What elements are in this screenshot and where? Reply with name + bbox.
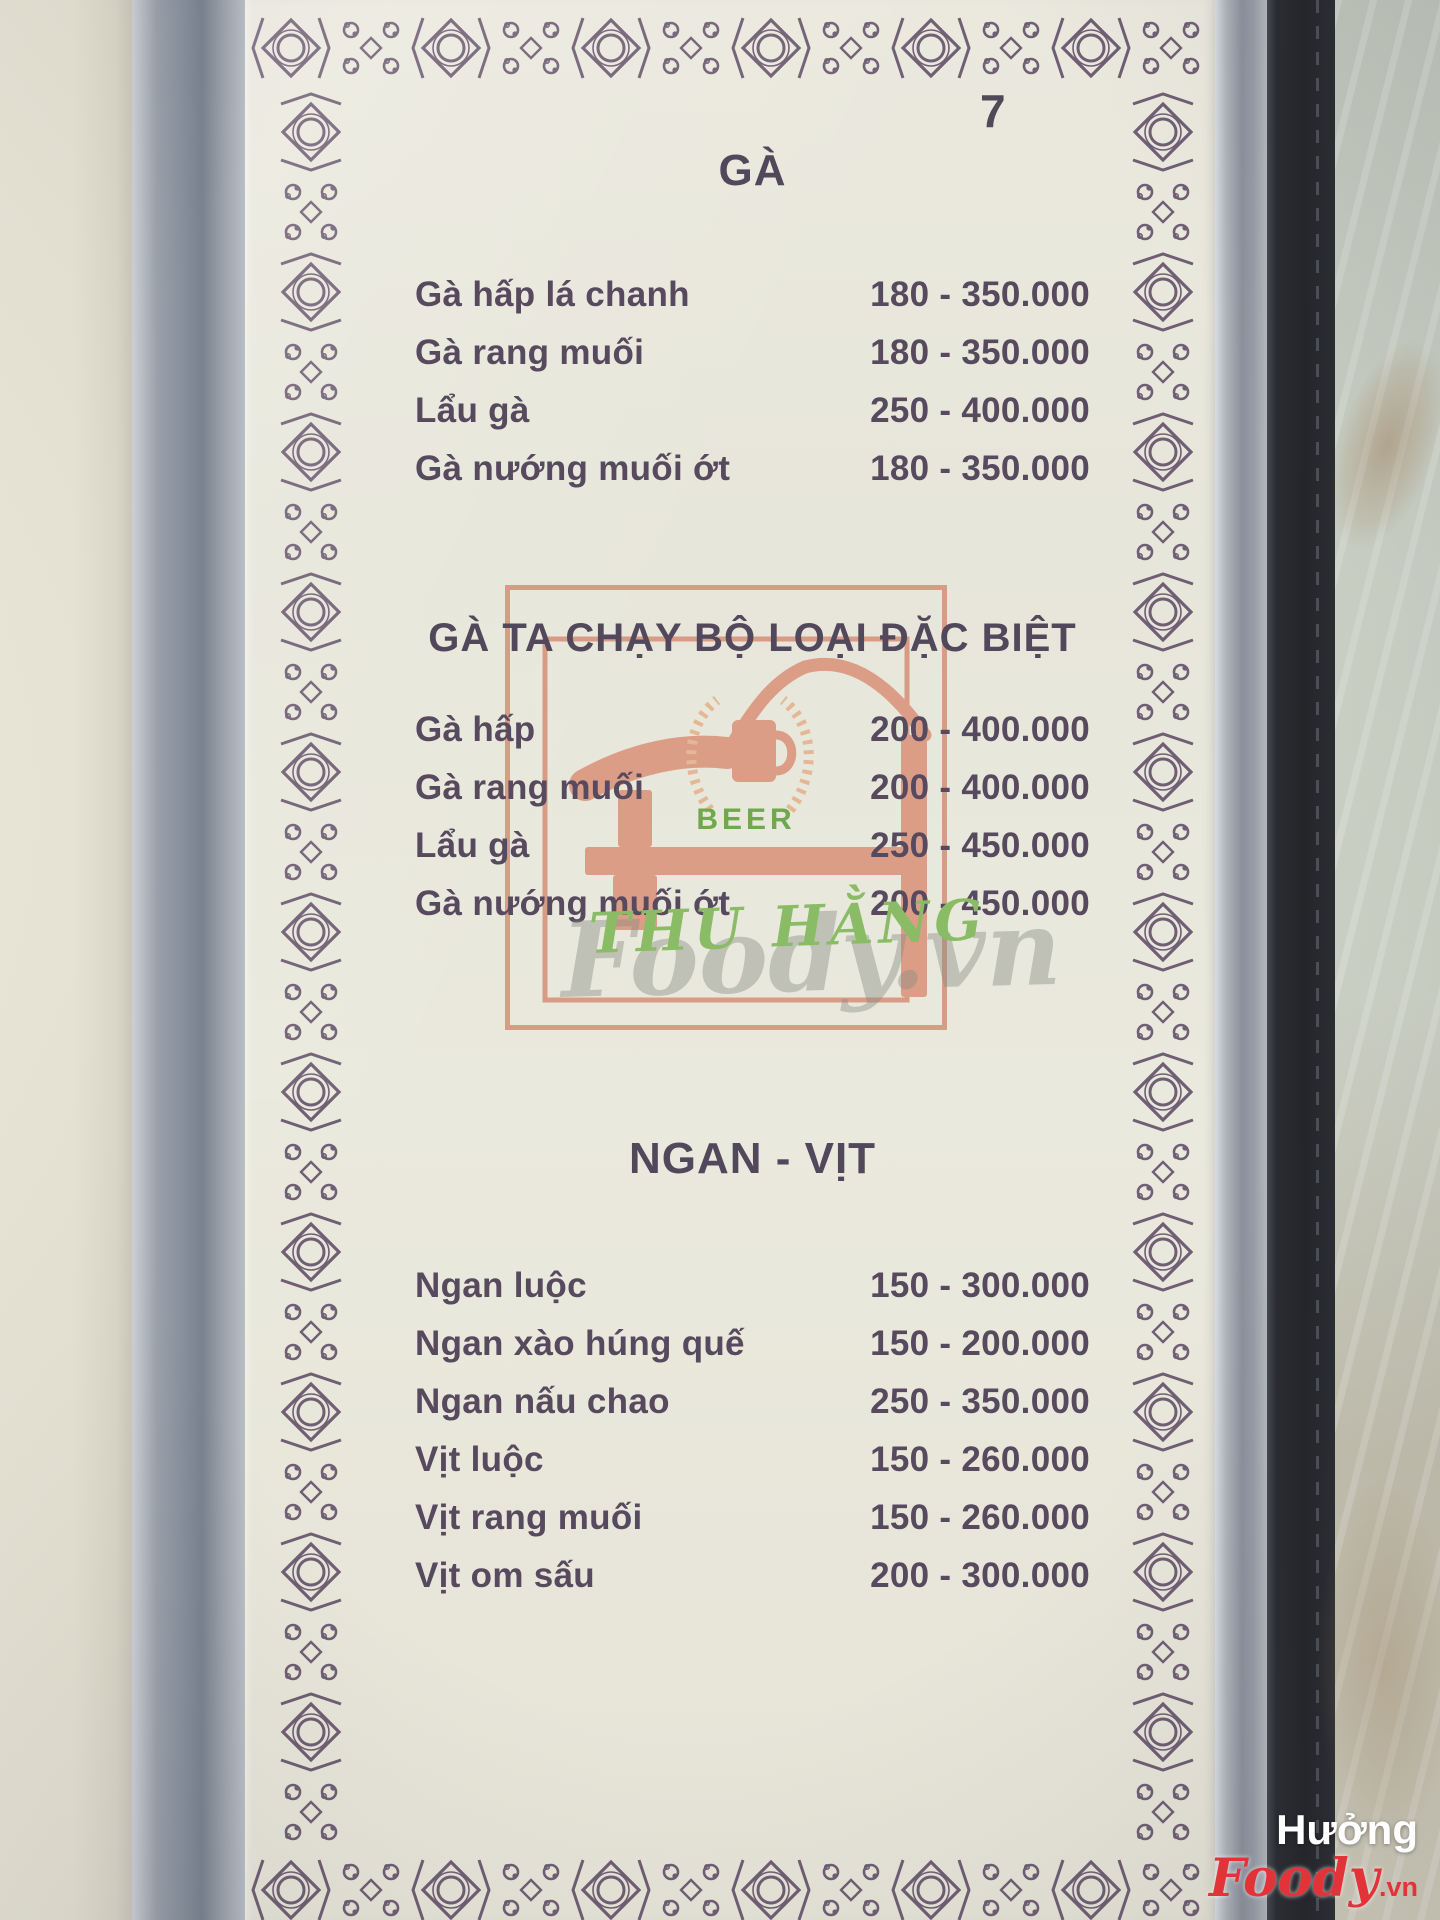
menu-item-row: Gà rang muối200 - 400.000 <box>415 759 1090 817</box>
binder-spine-edge <box>132 0 245 1920</box>
menu-item-price: 250 - 350.000 <box>870 1382 1090 1422</box>
border-ornament-tile <box>1123 1212 1203 1292</box>
border-ornament-tile <box>1123 1692 1203 1772</box>
menu-item-row: Lẩu gà250 - 450.000 <box>415 817 1090 875</box>
border-ornament-tile <box>571 8 651 88</box>
menu-item-name: Gà hấp lá chanh <box>415 275 690 315</box>
border-ornament-tile <box>891 1850 971 1920</box>
menu-item-row: Vịt om sấu200 - 300.000 <box>415 1547 1090 1605</box>
menu-item-price: 200 - 400.000 <box>870 768 1090 808</box>
ornament-border-bottom <box>251 1850 1207 1920</box>
menu-item-price: 180 - 350.000 <box>870 449 1090 489</box>
menu-item-name: Ngan xào húng quế <box>415 1324 745 1364</box>
menu-item-price: 200 - 300.000 <box>870 1556 1090 1596</box>
border-ornament-tile <box>1123 1052 1203 1132</box>
border-ornament-tile <box>271 92 351 172</box>
menu-photo: BEER Foody.vn THU HẰNG 7 GÀ Gà hấp lá ch… <box>0 0 1440 1920</box>
foody-corner-watermark: Hưởng Foody.vn <box>1209 1808 1418 1907</box>
ornament-border-left <box>271 92 353 1850</box>
border-ornament-tile <box>271 1532 351 1612</box>
border-ornament-tile <box>331 1850 411 1920</box>
menu-item-row: Vịt rang muối150 - 260.000 <box>415 1489 1090 1547</box>
menu-item-row: Ngan nấu chao250 - 350.000 <box>415 1373 1090 1431</box>
border-ornament-tile <box>271 1772 351 1850</box>
border-ornament-tile <box>271 1052 351 1132</box>
menu-item-row: Vịt luộc150 - 260.000 <box>415 1431 1090 1489</box>
menu-section-ngan-vit: Ngan luộc150 - 300.000Ngan xào húng quế1… <box>415 1257 1090 1605</box>
border-ornament-tile <box>491 1850 571 1920</box>
restaurant-name-script: THU HẰNG <box>588 887 988 967</box>
border-ornament-tile <box>1123 1772 1203 1850</box>
border-ornament-tile <box>1123 172 1203 252</box>
watermark-username: Hưởng <box>1209 1808 1418 1852</box>
menu-page: BEER Foody.vn THU HẰNG 7 GÀ Gà hấp lá ch… <box>245 0 1215 1920</box>
border-ornament-tile <box>271 1452 351 1532</box>
border-ornament-tile <box>1131 1850 1207 1920</box>
page-number: 7 <box>980 84 1040 138</box>
border-ornament-tile <box>971 8 1051 88</box>
border-ornament-tile <box>251 1850 331 1920</box>
border-ornament-tile <box>271 1692 351 1772</box>
border-ornament-tile <box>1131 8 1207 88</box>
menu-item-price: 150 - 200.000 <box>870 1324 1090 1364</box>
border-ornament-tile <box>271 332 351 412</box>
border-ornament-tile <box>1123 652 1203 732</box>
border-ornament-tile <box>491 8 571 88</box>
section-title-ngan-vit: NGAN - VỊT <box>415 1134 1090 1184</box>
border-ornament-tile <box>271 732 351 812</box>
border-ornament-tile <box>1051 1850 1131 1920</box>
border-ornament-tile <box>571 1850 651 1920</box>
menu-item-row: Gà hấp200 - 400.000 <box>415 701 1090 759</box>
menu-item-price: 250 - 450.000 <box>870 826 1090 866</box>
border-ornament-tile <box>411 1850 491 1920</box>
menu-item-name: Vịt om sấu <box>415 1556 595 1596</box>
menu-item-name: Vịt rang muối <box>415 1498 643 1538</box>
border-ornament-tile <box>331 8 411 88</box>
border-ornament-tile <box>811 8 891 88</box>
border-ornament-tile <box>1123 412 1203 492</box>
border-ornament-tile <box>271 652 351 732</box>
menu-section-ga: Gà hấp lá chanh180 - 350.000Gà rang muối… <box>415 266 1090 498</box>
border-ornament-tile <box>271 972 351 1052</box>
border-ornament-tile <box>271 1372 351 1452</box>
border-ornament-tile <box>411 8 491 88</box>
menu-item-name: Gà rang muối <box>415 333 644 373</box>
menu-item-name: Ngan luộc <box>415 1266 587 1306</box>
border-ornament-tile <box>251 8 331 88</box>
menu-item-price: 200 - 400.000 <box>870 710 1090 750</box>
border-ornament-tile <box>271 492 351 572</box>
menu-item-price: 180 - 350.000 <box>870 275 1090 315</box>
menu-item-price: 150 - 260.000 <box>870 1440 1090 1480</box>
border-ornament-tile <box>1123 1452 1203 1532</box>
menu-item-row: Gà rang muối180 - 350.000 <box>415 324 1090 382</box>
border-ornament-tile <box>891 8 971 88</box>
menu-item-row: Ngan luộc150 - 300.000 <box>415 1257 1090 1315</box>
border-ornament-tile <box>971 1850 1051 1920</box>
border-ornament-tile <box>271 172 351 252</box>
watermark-brand: Foody.vn <box>1209 1852 1418 1907</box>
menu-item-row: Ngan xào húng quế150 - 200.000 <box>415 1315 1090 1373</box>
section-title-ga-ta: GÀ TA CHẠY BỘ LOẠI ĐẶC BIỆT <box>355 616 1150 661</box>
menu-item-price: 150 - 260.000 <box>870 1498 1090 1538</box>
border-ornament-tile <box>651 8 731 88</box>
border-ornament-tile <box>811 1850 891 1920</box>
border-ornament-tile <box>271 1132 351 1212</box>
border-ornament-tile <box>271 412 351 492</box>
border-ornament-tile <box>1051 8 1131 88</box>
border-ornament-tile <box>271 252 351 332</box>
border-ornament-tile <box>1123 812 1203 892</box>
section-title-ga: GÀ <box>415 146 1090 196</box>
menu-item-name: Gà hấp <box>415 710 535 750</box>
border-ornament-tile <box>1123 732 1203 812</box>
menu-item-price: 150 - 300.000 <box>870 1266 1090 1306</box>
background-wall-strip <box>0 0 132 1920</box>
menu-item-row: Gà nướng muối ớt180 - 350.000 <box>415 440 1090 498</box>
menu-item-name: Ngan nấu chao <box>415 1382 670 1422</box>
border-ornament-tile <box>1123 1532 1203 1612</box>
border-ornament-tile <box>1123 1372 1203 1452</box>
menu-item-row: Lẩu gà250 - 400.000 <box>415 382 1090 440</box>
border-ornament-tile <box>731 8 811 88</box>
border-ornament-tile <box>1123 332 1203 412</box>
menu-item-row: Gà hấp lá chanh180 - 350.000 <box>415 266 1090 324</box>
border-ornament-tile <box>1123 1292 1203 1372</box>
border-ornament-tile <box>271 1612 351 1692</box>
menu-item-name: Gà nướng muối ớt <box>415 449 730 489</box>
ornament-border-top <box>251 8 1207 92</box>
menu-item-name: Lẩu gà <box>415 826 530 866</box>
border-ornament-tile <box>1123 1132 1203 1212</box>
border-ornament-tile <box>271 812 351 892</box>
menu-item-price: 180 - 350.000 <box>870 333 1090 373</box>
border-ornament-tile <box>651 1850 731 1920</box>
menu-item-name: Gà rang muối <box>415 768 644 808</box>
border-ornament-tile <box>271 572 351 652</box>
border-ornament-tile <box>271 1292 351 1372</box>
border-ornament-tile <box>731 1850 811 1920</box>
plastic-sleeve-edge <box>1215 0 1267 1920</box>
border-ornament-tile <box>1123 92 1203 172</box>
border-ornament-tile <box>1123 252 1203 332</box>
border-ornament-tile <box>1123 492 1203 572</box>
menu-item-name: Vịt luộc <box>415 1440 544 1480</box>
menu-item-name: Lẩu gà <box>415 391 530 431</box>
border-ornament-tile <box>271 892 351 972</box>
menu-item-price: 250 - 400.000 <box>870 391 1090 431</box>
border-ornament-tile <box>1123 1612 1203 1692</box>
border-ornament-tile <box>271 1212 351 1292</box>
